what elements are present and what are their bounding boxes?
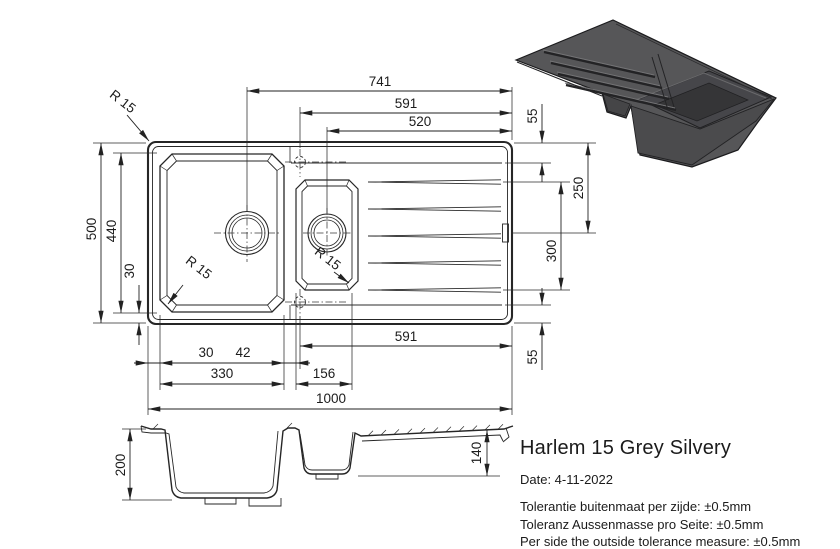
tolerance-note-de: Toleranz Aussenmasse pro Seite: ±0.5mm	[520, 516, 800, 534]
dim-label-42: 42	[235, 345, 250, 360]
drawing-date: Date: 4-11-2022	[520, 472, 800, 487]
technical-drawing-sheet: 741 591 520 R 15 55 250 300 55 500 440 3…	[0, 0, 840, 549]
right-dimensions: 55 250 300 55	[503, 104, 596, 370]
dim-label-591-top: 591	[395, 96, 418, 111]
drainboard-grooves	[368, 180, 501, 292]
section-mounting-feet	[205, 474, 338, 506]
bottom-dimensions: 591 30 42 330 156 1000	[134, 293, 512, 415]
dim-label-140: 140	[469, 442, 484, 465]
title-block: Harlem 15 Grey Silvery Date: 4-11-2022 T…	[520, 437, 800, 549]
dim-label-156: 156	[313, 366, 336, 381]
radius-label-main-bowl: R 15	[183, 253, 215, 282]
plan-view	[148, 142, 512, 324]
dim-label-55-bottom: 55	[525, 349, 540, 364]
tap-hole-marker-bottom	[285, 289, 347, 316]
dim-label-250: 250	[571, 177, 586, 200]
dim-label-741: 741	[369, 74, 392, 89]
section-dimensions: 200 140	[113, 429, 500, 500]
sink-3d-render	[516, 20, 776, 167]
top-dimensions: 741 591 520 R 15	[107, 74, 512, 213]
tolerance-notes: Tolerantie buitenmaat per zijde: ±0.5mm …	[520, 498, 800, 549]
dim-label-55-top: 55	[525, 108, 540, 123]
section-inner-profile	[141, 426, 509, 493]
radius-label-outer-corner: R 15	[107, 87, 139, 116]
dim-label-330: 330	[211, 366, 234, 381]
dim-label-500: 500	[84, 218, 99, 241]
section-surface-ticks	[153, 423, 503, 436]
product-title: Harlem 15 Grey Silvery	[520, 437, 800, 460]
dim-label-30-bottom: 30	[198, 345, 213, 360]
dim-label-200: 200	[113, 454, 128, 477]
tolerance-note-nl: Tolerantie buitenmaat per zijde: ±0.5mm	[520, 498, 800, 516]
dim-label-30-left: 30	[122, 263, 137, 278]
dim-label-1000: 1000	[316, 391, 346, 406]
section-view	[141, 423, 513, 506]
dim-label-520: 520	[409, 114, 432, 129]
dim-label-300: 300	[544, 240, 559, 263]
dim-label-591-bottom: 591	[395, 329, 418, 344]
tolerance-note-en: Per side the outside tolerance measure: …	[520, 533, 800, 549]
left-dimensions: 500 440 30 R 15 R 15	[84, 143, 349, 345]
dim-label-440: 440	[104, 220, 119, 243]
